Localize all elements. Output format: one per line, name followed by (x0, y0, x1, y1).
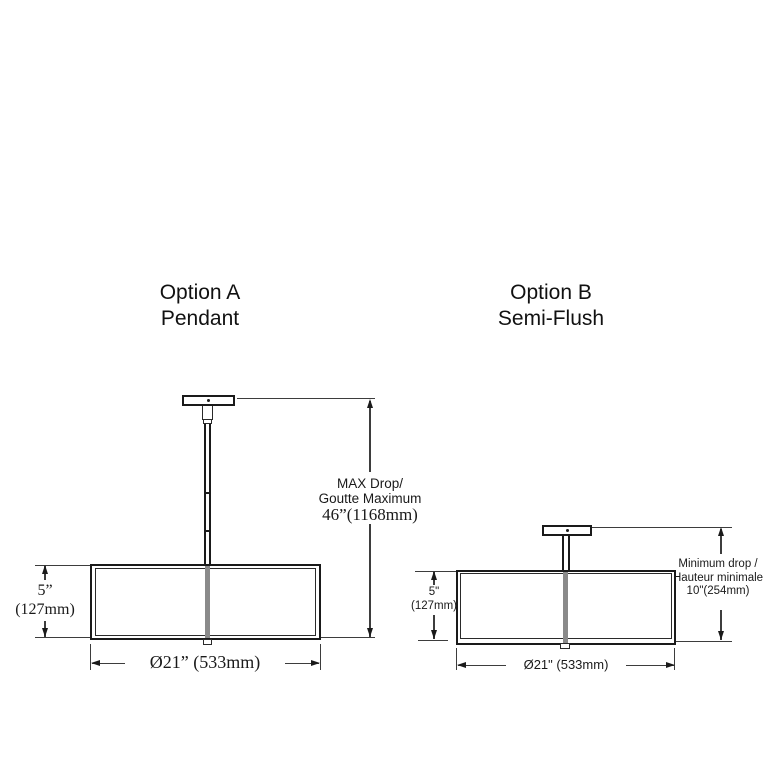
spec-diagram-canvas: Option A Pendant MAX Drop/ Goutte Maximu… (0, 0, 780, 780)
ext-stub-dia-a-left (90, 644, 91, 670)
option-a-title: Option A (110, 280, 290, 306)
dim-arrow-dia-a-left (91, 660, 100, 666)
ext-line-shade-bottom-right-a (319, 637, 375, 638)
dim-arrow-dia-b-right (666, 662, 675, 668)
ext-line-shade-bottom-left-b (418, 640, 448, 641)
dim-arrow-height-b-up (431, 571, 437, 580)
dim-arrow-dia-a-right (311, 660, 320, 666)
max-drop-value: 46”(1168mm) (288, 506, 452, 523)
height-dimension-label-a: 5” (127mm) (5, 581, 85, 619)
height-a-inches: 5” (5, 581, 85, 600)
dim-arrow-dia-b-left (457, 662, 466, 668)
dim-arrow-mindrop-up (718, 527, 724, 536)
option-a-title-block: Option A Pendant (110, 280, 290, 332)
dim-arrow-height-b-down (431, 630, 437, 639)
dim-arrow-maxdrop-down (367, 628, 373, 637)
pendant-rod-coupling-top (203, 419, 212, 424)
pendant-stem-connector (202, 404, 213, 420)
ext-stub-dia-a-right (320, 644, 321, 670)
option-b-title: Option B (461, 280, 641, 306)
ext-line-canopy-b (592, 527, 732, 528)
dim-arrow-height-a-down (42, 628, 48, 637)
option-b-subtitle: Semi-Flush (461, 306, 641, 332)
ext-line-shade-bottom-left-a (35, 637, 91, 638)
canopy-screw-dot-a (207, 399, 210, 402)
dim-arrow-mindrop-down (718, 631, 724, 640)
shade-center-stem-b (563, 572, 568, 643)
rod-joint-tick-1 (204, 492, 211, 494)
option-b-title-block: Option B Semi-Flush (461, 280, 641, 332)
max-drop-label: MAX Drop/ Goutte Maximum 46”(1168mm) (288, 477, 452, 523)
max-drop-label-line1: MAX Drop/ (288, 477, 452, 492)
shade-finial-b (560, 643, 570, 649)
ext-line-canopy-a (237, 398, 375, 399)
shade-center-stem-a (205, 566, 210, 638)
height-a-mm: (127mm) (5, 600, 85, 619)
dim-arrow-maxdrop-up (367, 399, 373, 408)
shade-finial-a (203, 639, 212, 645)
dim-line-maxdrop-top (369, 401, 370, 472)
dim-line-maxdrop-bottom (369, 524, 370, 637)
diameter-dimension-label-a: Ø21” (533mm) (125, 653, 285, 671)
diameter-dimension-label-b: Ø21" (533mm) (506, 658, 626, 672)
max-drop-label-line2: Goutte Maximum (288, 492, 452, 507)
ext-line-shade-bottom-right-b (676, 641, 732, 642)
option-a-subtitle: Pendant (110, 306, 290, 332)
dim-arrow-height-a-up (42, 565, 48, 574)
semiflush-rod (562, 535, 570, 570)
rod-joint-tick-2 (204, 530, 211, 532)
canopy-screw-dot-b (566, 529, 569, 532)
